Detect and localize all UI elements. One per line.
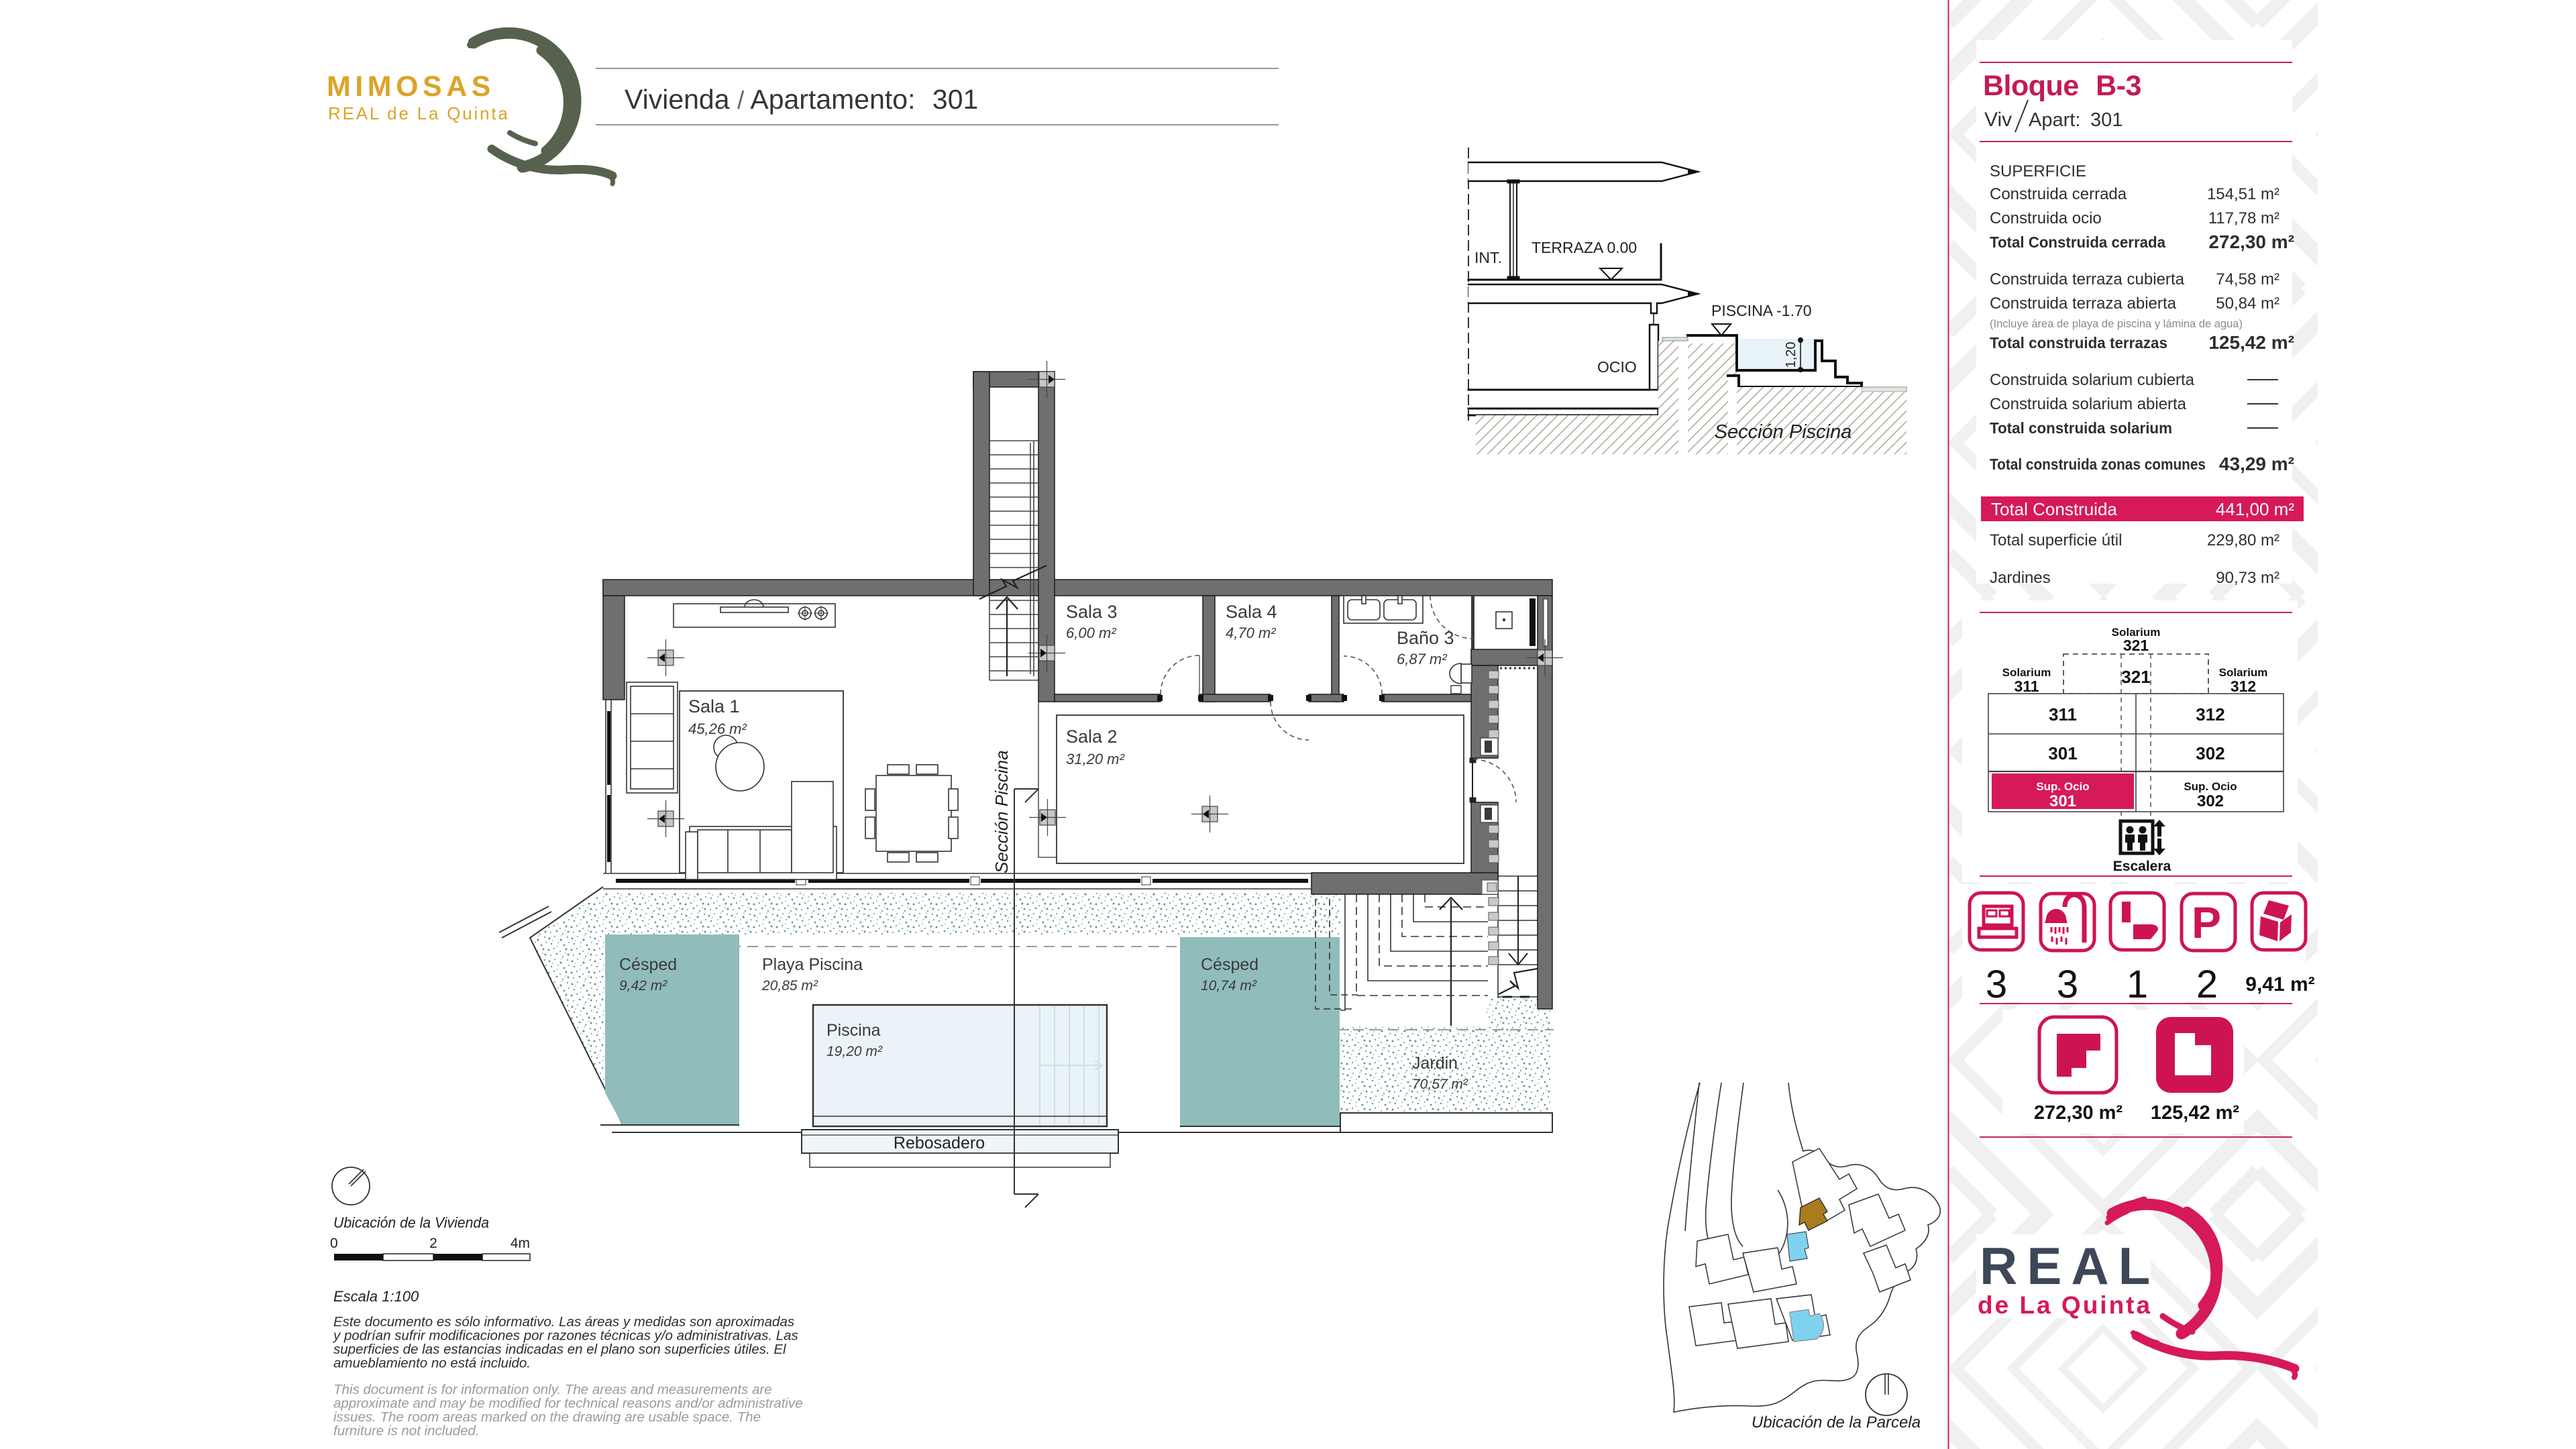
- svg-text:2: 2: [2196, 963, 2218, 1006]
- svg-text:Sala 2: Sala 2: [1066, 727, 1118, 747]
- svg-text:1: 1: [2127, 963, 2148, 1006]
- svg-text:301: 301: [2090, 109, 2123, 131]
- svg-text:Piscina: Piscina: [826, 1021, 881, 1040]
- svg-text:6,87 m²: 6,87 m²: [1397, 651, 1447, 667]
- svg-text:Construida cerrada: Construida cerrada: [1990, 185, 2127, 203]
- svg-text:Total Construida: Total Construida: [1991, 499, 2117, 519]
- svg-text:74,58 m²: 74,58 m²: [2216, 270, 2279, 288]
- svg-text:Apart:: Apart:: [2029, 109, 2080, 131]
- svg-text:43,29 m²: 43,29 m²: [2219, 453, 2294, 474]
- svg-text:10,74 m²: 10,74 m²: [1201, 978, 1257, 994]
- svg-text:70,57 m²: 70,57 m²: [1412, 1077, 1468, 1092]
- svg-text:312: 312: [2196, 704, 2224, 724]
- svg-text:272,30 m²: 272,30 m²: [2208, 231, 2294, 252]
- svg-text:Sección Piscina: Sección Piscina: [1715, 421, 1852, 443]
- svg-text:311: 311: [2049, 704, 2077, 724]
- svg-text:Construida solarium abierta: Construida solarium abierta: [1990, 395, 2187, 413]
- svg-text:Escala 1:100: Escala 1:100: [333, 1288, 419, 1305]
- svg-text:Baño 3: Baño 3: [1397, 628, 1454, 648]
- svg-text:PISCINA -1.70: PISCINA -1.70: [1711, 302, 1812, 319]
- svg-text:Jardin: Jardin: [1412, 1054, 1458, 1073]
- svg-text:302: 302: [2196, 743, 2224, 763]
- svg-text:321: 321: [2121, 667, 2150, 687]
- svg-text:INT.: INT.: [1474, 249, 1502, 266]
- svg-text:Bloque B-3: Bloque B-3: [1983, 70, 2141, 102]
- svg-text:4m: 4m: [511, 1236, 530, 1251]
- svg-text:301: 301: [2049, 792, 2076, 810]
- svg-text:Ubicación de la Parcela: Ubicación de la Parcela: [1752, 1413, 1921, 1432]
- svg-text:Sup. Ocio: Sup. Ocio: [2036, 780, 2089, 793]
- svg-text:Sala 4: Sala 4: [1226, 602, 1277, 622]
- svg-text:Total construida terrazas: Total construida terrazas: [1990, 334, 2167, 352]
- svg-text:312: 312: [2231, 678, 2256, 695]
- svg-text:Viv: Viv: [1984, 109, 2012, 131]
- svg-text:302: 302: [2197, 792, 2224, 810]
- svg-text:Construida terraza abierta: Construida terraza abierta: [1990, 294, 2177, 313]
- svg-text:31,20 m²: 31,20 m²: [1066, 751, 1124, 767]
- svg-text:1,20: 1,20: [1784, 342, 1799, 368]
- svg-text:154,51 m²: 154,51 m²: [2207, 185, 2279, 203]
- svg-text:4,70 m²: 4,70 m²: [1226, 625, 1276, 641]
- svg-text:272,30 m²: 272,30 m²: [2034, 1102, 2123, 1124]
- svg-text:Construida ocio: Construida ocio: [1990, 209, 2102, 227]
- svg-text:Playa Piscina: Playa Piscina: [762, 955, 863, 974]
- svg-text:45,26 m²: 45,26 m²: [688, 720, 747, 737]
- svg-text:9,41 m²: 9,41 m²: [2245, 973, 2314, 996]
- svg-text:Construida solarium cubierta: Construida solarium cubierta: [1990, 371, 2195, 389]
- svg-text:furniture is not included.: furniture is not included.: [333, 1424, 480, 1439]
- svg-text:9,42 m²: 9,42 m²: [619, 978, 667, 994]
- svg-text:311: 311: [2014, 678, 2039, 695]
- svg-text:90,73 m²: 90,73 m²: [2216, 569, 2279, 587]
- svg-text:Sala 1: Sala 1: [688, 696, 740, 716]
- svg-text:REAL: REAL: [1980, 1236, 2159, 1295]
- svg-text:Jardines: Jardines: [1990, 569, 2051, 587]
- svg-text:321: 321: [2123, 637, 2149, 654]
- svg-text:amueblamiento no está incluido: amueblamiento no está incluido.: [333, 1356, 531, 1371]
- svg-text:19,20 m²: 19,20 m²: [826, 1044, 883, 1059]
- svg-text:50,84 m²: 50,84 m²: [2216, 294, 2279, 313]
- svg-text:2: 2: [429, 1236, 437, 1251]
- svg-text:441,00 m²: 441,00 m²: [2216, 499, 2294, 519]
- svg-text:Construida terraza cubierta: Construida terraza cubierta: [1990, 270, 2185, 288]
- svg-text:MIMOSAS: MIMOSAS: [327, 70, 495, 103]
- svg-text:125,42 m²: 125,42 m²: [2208, 332, 2294, 353]
- svg-text:Sup. Ocio: Sup. Ocio: [2184, 780, 2237, 793]
- svg-text:Escalera: Escalera: [2113, 859, 2171, 874]
- svg-text:REAL de La Quinta: REAL de La Quinta: [328, 103, 510, 123]
- svg-text:6,00 m²: 6,00 m²: [1066, 625, 1116, 641]
- svg-text:301: 301: [2048, 743, 2077, 763]
- svg-text:Total superficie útil: Total superficie útil: [1990, 531, 2122, 549]
- svg-text:117,78 m²: 117,78 m²: [2208, 209, 2279, 227]
- svg-text:Césped: Césped: [619, 955, 677, 974]
- svg-text:Sección Piscina: Sección Piscina: [991, 750, 1012, 873]
- svg-text:OCIO: OCIO: [1597, 358, 1637, 376]
- svg-text:Sala 3: Sala 3: [1066, 602, 1118, 622]
- svg-text:20,85 m²: 20,85 m²: [761, 978, 818, 994]
- svg-text:3: 3: [2057, 963, 2078, 1006]
- svg-text:TERRAZA 0.00: TERRAZA 0.00: [1532, 239, 1637, 256]
- svg-text:0: 0: [330, 1236, 338, 1251]
- svg-text:Total construida zonas comunes: Total construida zonas comunes: [1990, 455, 2206, 473]
- svg-text:Césped: Césped: [1201, 955, 1258, 974]
- svg-text:3: 3: [1986, 963, 2007, 1006]
- svg-text:Rebosadero: Rebosadero: [894, 1134, 985, 1152]
- svg-text:Total construida solarium: Total construida solarium: [1990, 419, 2172, 437]
- svg-text:Ubicación de la Vivienda: Ubicación de la Vivienda: [333, 1214, 489, 1231]
- svg-text:125,42 m²: 125,42 m²: [2151, 1102, 2240, 1124]
- svg-text:P: P: [2192, 898, 2221, 947]
- svg-text:(Incluye área de playa de pisc: (Incluye área de playa de piscina y lámi…: [1990, 318, 2243, 330]
- svg-text:229,80 m²: 229,80 m²: [2207, 531, 2279, 549]
- svg-text:SUPERFICIE: SUPERFICIE: [1990, 162, 2086, 180]
- svg-text:Total Construida cerrada: Total Construida cerrada: [1990, 233, 2166, 251]
- svg-text:de La Quinta: de La Quinta: [1978, 1291, 2152, 1319]
